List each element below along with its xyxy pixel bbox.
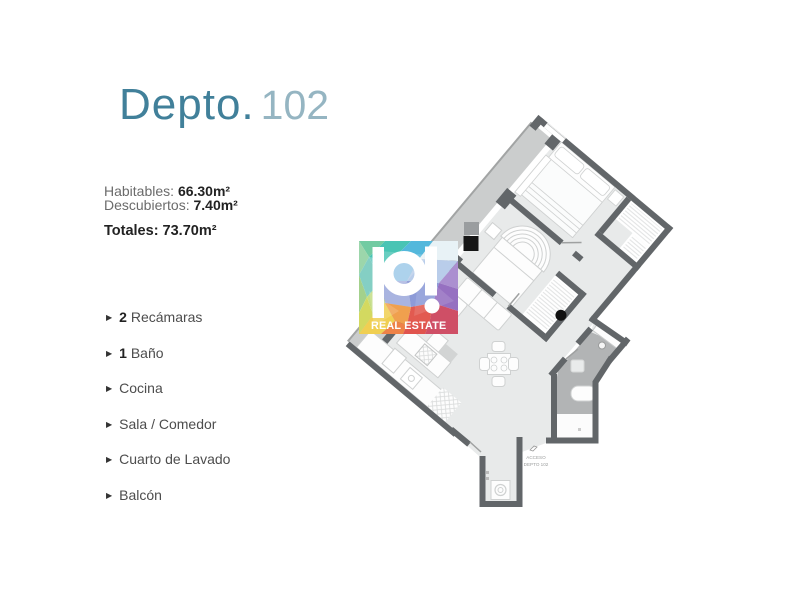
svg-text:ACCESO: ACCESO <box>526 455 546 460</box>
svg-text:DEPTO 102: DEPTO 102 <box>524 462 549 467</box>
svg-text:REAL ESTATE: REAL ESTATE <box>371 320 446 332</box>
